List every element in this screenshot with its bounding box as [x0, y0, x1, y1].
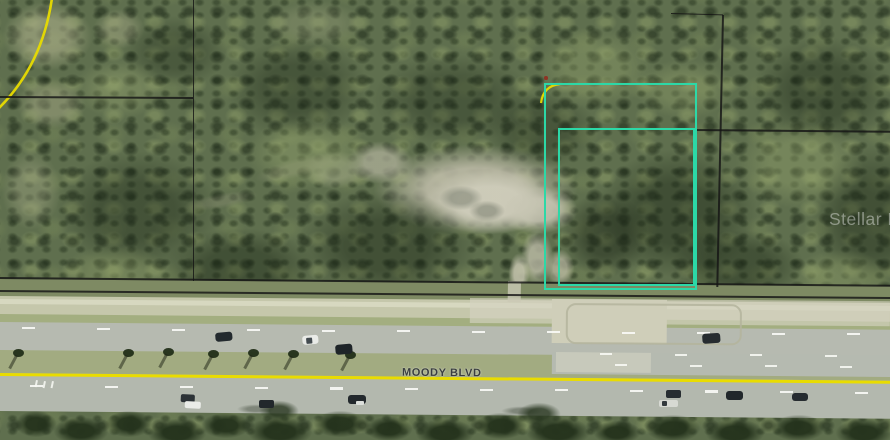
survey-marker-dot [544, 76, 548, 80]
tree [704, 418, 766, 440]
tree [524, 416, 592, 440]
tree [200, 412, 252, 439]
lane-dash [622, 332, 635, 334]
lane-dash [322, 330, 335, 332]
vehicle [666, 390, 681, 398]
vehicle [726, 391, 743, 400]
dry-grass-patch [0, 0, 95, 72]
lane-dash [600, 353, 612, 355]
lane-dash [180, 386, 193, 388]
vehicle [215, 332, 233, 342]
tree [414, 418, 476, 440]
lane-dash [847, 333, 860, 335]
lane-dash [255, 387, 268, 389]
tree [312, 410, 368, 438]
tree [770, 414, 827, 440]
mls-watermark: Stellar MLS [829, 209, 890, 230]
tree [644, 414, 702, 440]
lane-dash [675, 354, 687, 356]
lane-dash [247, 329, 260, 331]
light-canopy-patch [242, 116, 372, 191]
parcel-line-short-right [671, 13, 723, 16]
lane-dash [172, 329, 185, 331]
median-island-pale [556, 352, 651, 373]
tree [14, 410, 58, 438]
vehicle [702, 333, 721, 344]
tree [146, 418, 208, 440]
lane-dash [615, 364, 627, 366]
lane-dash [780, 391, 793, 393]
tree [246, 416, 314, 440]
lane-dash [330, 387, 343, 389]
lane-dash [472, 331, 485, 333]
lane-dash [825, 355, 837, 357]
vehicle-windshield [306, 337, 313, 344]
lane-dash [705, 390, 718, 392]
tree [834, 418, 890, 440]
tree [364, 416, 414, 440]
lane-dash [765, 365, 777, 367]
lane-dash [690, 365, 702, 367]
vehicle-roof [662, 401, 667, 406]
lane-dash [630, 390, 643, 392]
tree [592, 420, 642, 440]
tree [474, 412, 528, 440]
vehicle-trailer [185, 401, 201, 409]
lane-dash [555, 389, 568, 391]
lane-dash [480, 389, 493, 391]
lane-dash [855, 392, 868, 394]
lane-dash [840, 366, 852, 368]
lane-dash [105, 386, 118, 388]
light-canopy-patch [72, 58, 167, 120]
driveway-path [508, 281, 521, 302]
lane-dash [772, 333, 785, 335]
vehicle [335, 344, 353, 355]
vehicle-roof [356, 401, 364, 405]
parcel-line-vertical-left [193, 0, 195, 281]
lane-dash [750, 354, 762, 356]
aerial-parcel-map: MOODY BLVD Stellar MLS [0, 0, 890, 440]
lane-dash [397, 330, 410, 332]
road-name-label: MOODY BLVD [402, 367, 482, 380]
lane-dash [405, 388, 418, 390]
lane-dash [97, 328, 110, 330]
lane-dash [547, 331, 560, 333]
parcel-outline-inner [558, 128, 695, 286]
vehicle [792, 393, 808, 401]
vehicle [259, 400, 274, 408]
tree [52, 416, 110, 440]
lane-dash [22, 327, 35, 329]
clearing-shadow [468, 200, 506, 222]
